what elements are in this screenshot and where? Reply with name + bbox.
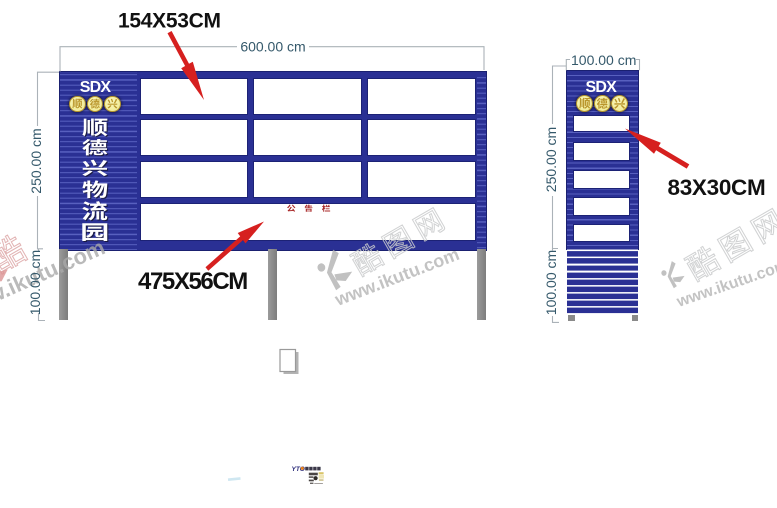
svg-text:100.00 cm: 100.00 cm: [543, 250, 559, 315]
svg-text:250.00 cm: 250.00 cm: [28, 128, 44, 193]
svg-text:83X30CM: 83X30CM: [668, 175, 766, 200]
svg-text:100.00 cm: 100.00 cm: [27, 250, 43, 315]
svg-text:100.00 cm: 100.00 cm: [571, 52, 636, 68]
svg-text:250.00 cm: 250.00 cm: [543, 127, 559, 192]
svg-text:475X56CM: 475X56CM: [138, 268, 247, 295]
svg-text:600.00 cm: 600.00 cm: [240, 39, 305, 55]
svg-text:154X53CM: 154X53CM: [118, 10, 221, 33]
